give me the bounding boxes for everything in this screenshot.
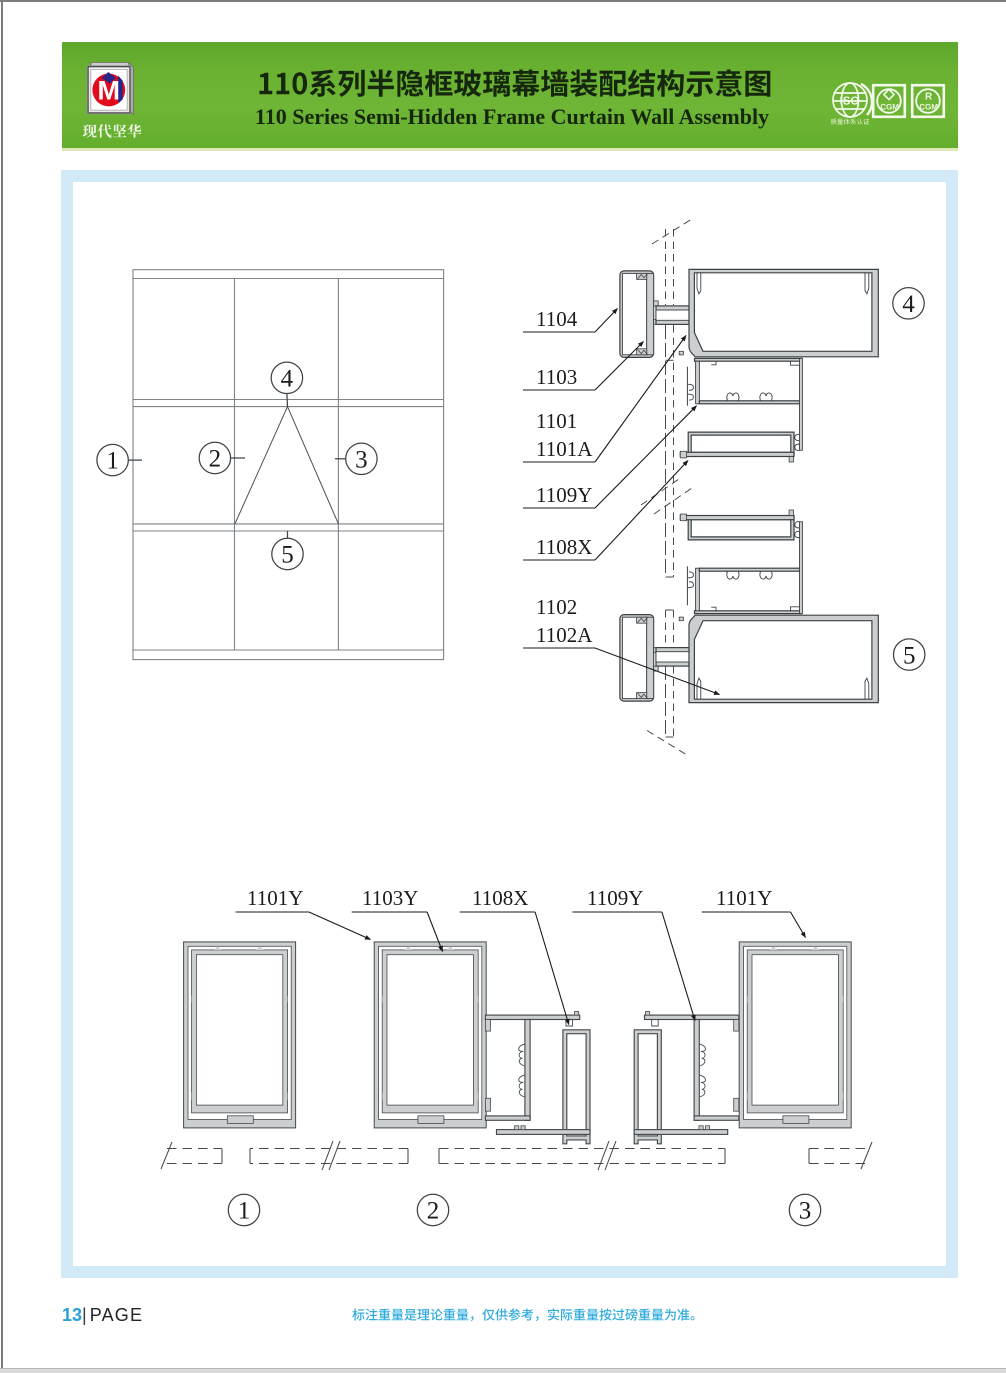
svg-text:1102A: 1102A bbox=[536, 623, 593, 647]
svg-text:3: 3 bbox=[799, 1198, 812, 1225]
svg-text:1: 1 bbox=[106, 448, 119, 475]
svg-text:1103: 1103 bbox=[536, 365, 577, 389]
svg-text:1101Y: 1101Y bbox=[716, 886, 772, 910]
svg-text:1104: 1104 bbox=[536, 307, 578, 331]
svg-text:1108X: 1108X bbox=[536, 535, 592, 559]
svg-text:1101A: 1101A bbox=[536, 437, 593, 461]
svg-text:4: 4 bbox=[281, 366, 294, 393]
svg-text:1101Y: 1101Y bbox=[247, 886, 303, 910]
svg-text:2: 2 bbox=[209, 446, 222, 473]
svg-text:1101: 1101 bbox=[536, 409, 577, 433]
svg-text:1: 1 bbox=[238, 1198, 251, 1225]
svg-text:1109Y: 1109Y bbox=[536, 483, 592, 507]
svg-text:4: 4 bbox=[902, 291, 915, 318]
svg-text:1103Y: 1103Y bbox=[362, 886, 418, 910]
svg-text:5: 5 bbox=[281, 542, 294, 569]
svg-text:3: 3 bbox=[355, 447, 368, 474]
svg-text:2: 2 bbox=[427, 1198, 440, 1225]
svg-text:1109Y: 1109Y bbox=[587, 886, 643, 910]
svg-text:1102: 1102 bbox=[536, 595, 577, 619]
svg-text:1108X: 1108X bbox=[472, 886, 528, 910]
svg-text:5: 5 bbox=[903, 642, 916, 669]
